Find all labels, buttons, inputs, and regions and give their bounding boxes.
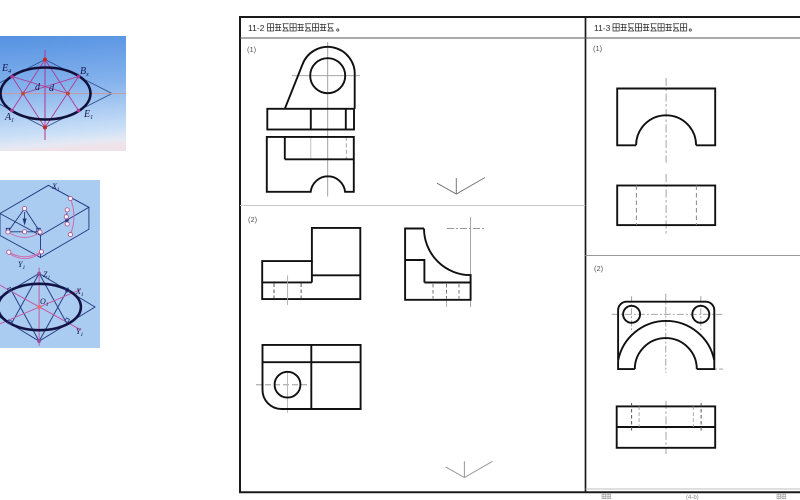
svg-text:11-2: 11-2 — [248, 23, 265, 33]
svg-text:(1): (1) — [247, 45, 257, 54]
svg-text:11-3: 11-3 — [594, 23, 611, 33]
svg-text:(2): (2) — [594, 264, 604, 273]
svg-text:(2): (2) — [248, 215, 258, 224]
svg-text:(4-b): (4-b) — [686, 495, 699, 500]
svg-text:(1): (1) — [593, 44, 603, 53]
